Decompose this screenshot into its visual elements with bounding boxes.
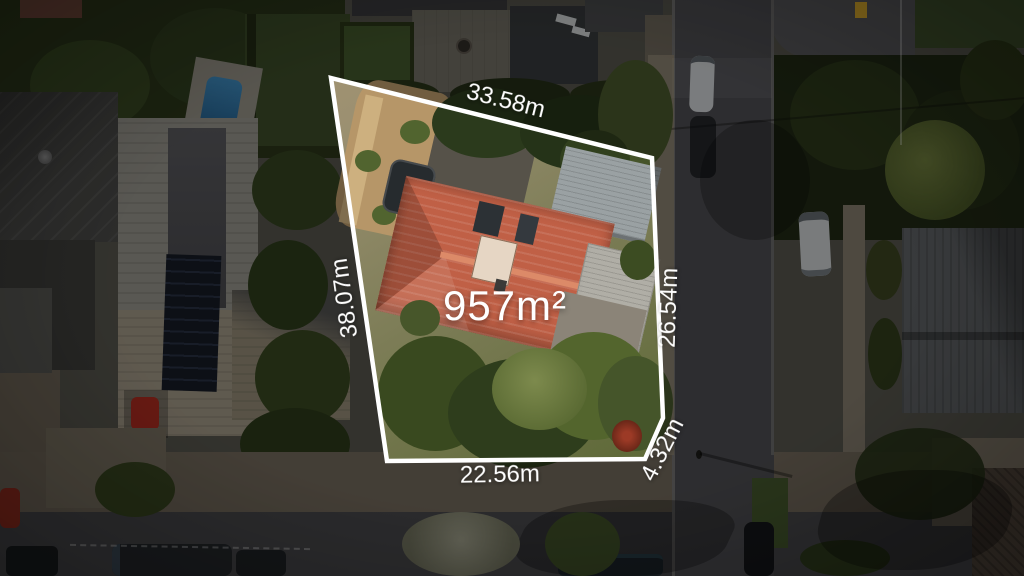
dimension-label-bottom: 22.56m bbox=[460, 460, 541, 488]
property-overlay-svg: 33.58m 38.07m 26.54m 22.56m 4.32m 957m² bbox=[0, 0, 1024, 576]
area-label: 957m² bbox=[443, 282, 567, 329]
aerial-photo: 33.58m 38.07m 26.54m 22.56m 4.32m 957m² bbox=[0, 0, 1024, 576]
dimension-label-right: 26.54m bbox=[654, 267, 684, 348]
